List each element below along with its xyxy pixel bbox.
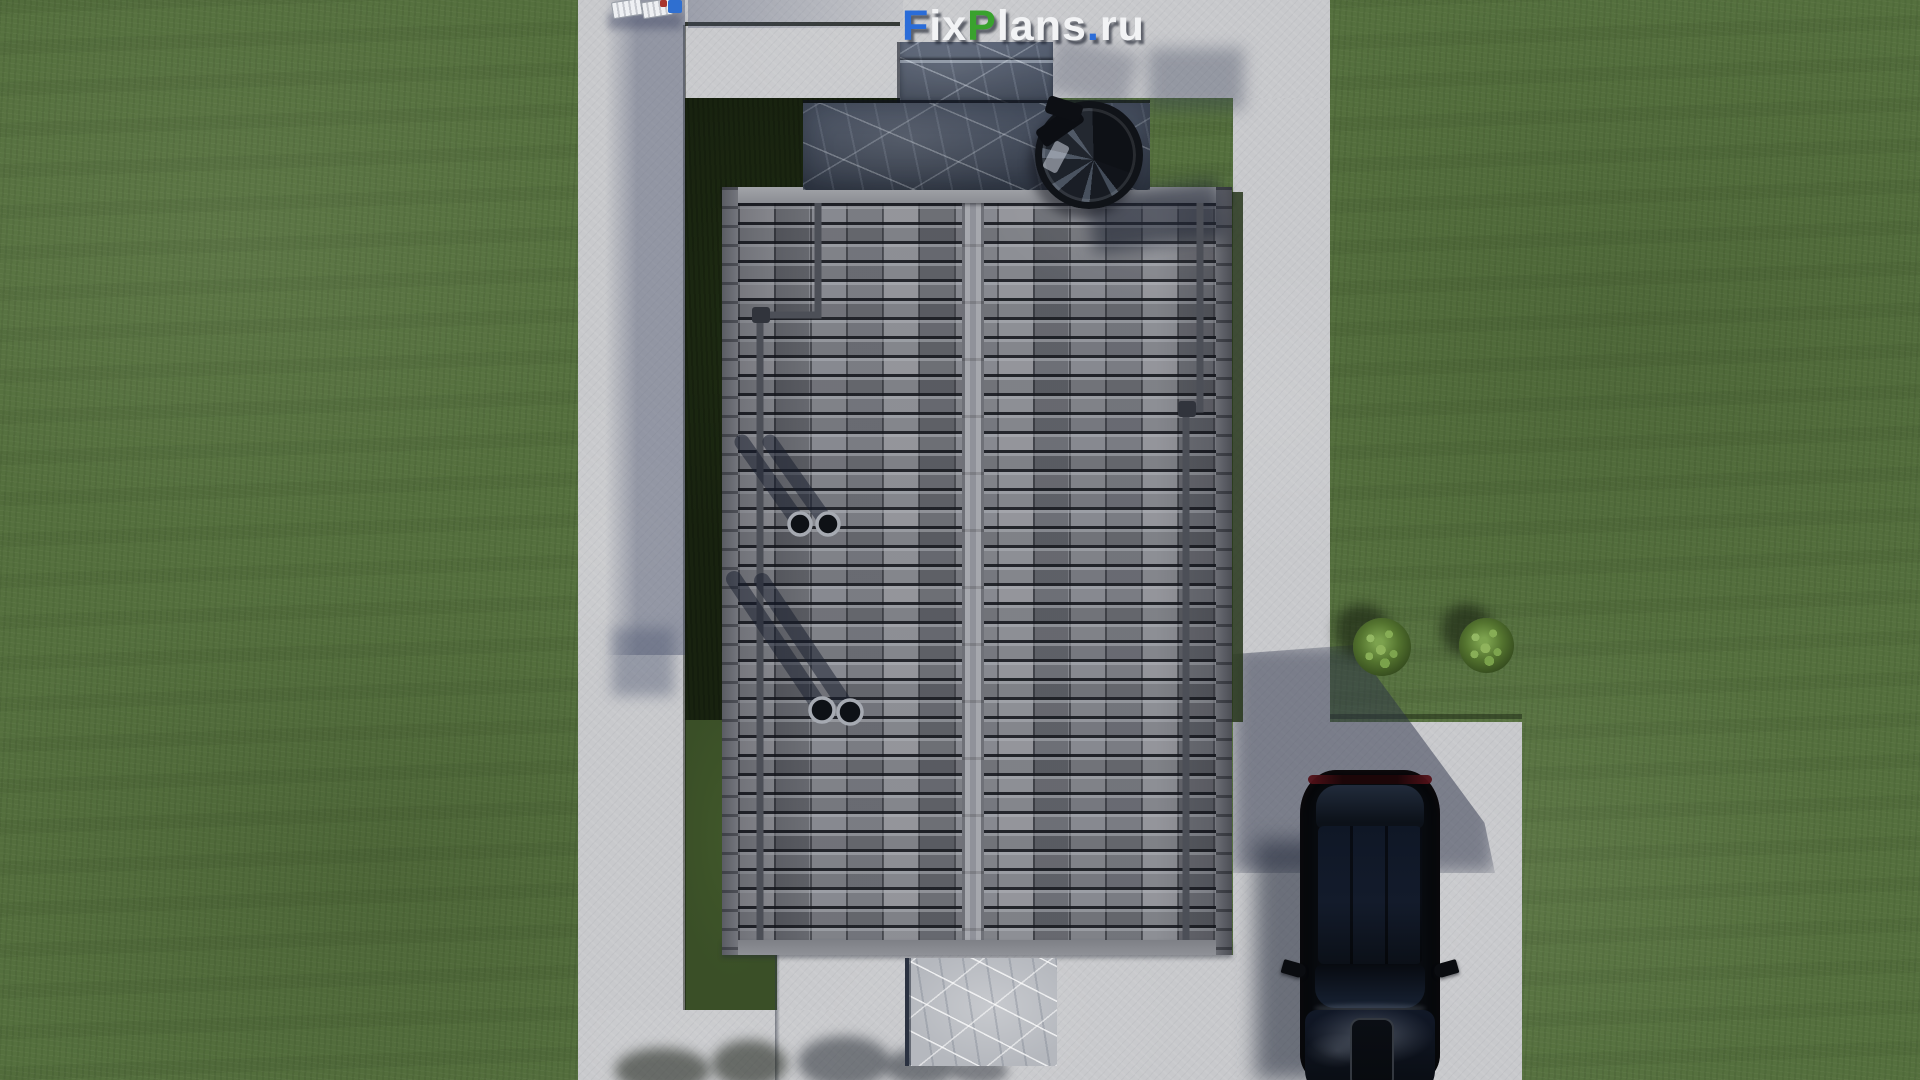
logo-part: ru bbox=[1100, 2, 1145, 50]
driveway-top-edge bbox=[1330, 714, 1522, 719]
stair-landing bbox=[1042, 140, 1070, 174]
logo-part: ix bbox=[929, 2, 967, 50]
car-taillights bbox=[1308, 775, 1432, 784]
car-hood-scoop bbox=[1350, 1018, 1394, 1080]
vent-pipe bbox=[817, 513, 839, 535]
car-rear-window bbox=[1316, 785, 1424, 829]
downpipe-elbow bbox=[752, 307, 770, 323]
vent-pipe bbox=[810, 698, 834, 722]
stone-terrace bbox=[803, 103, 1150, 190]
pool-toy-red bbox=[660, 0, 667, 7]
marble-step bbox=[900, 42, 1053, 105]
car-windshield bbox=[1315, 964, 1425, 1008]
pool-toy-blue bbox=[668, 0, 682, 13]
logo-part: F bbox=[902, 2, 929, 50]
logo-part: . bbox=[1087, 2, 1100, 50]
black-car bbox=[1300, 770, 1440, 1080]
garden-bush bbox=[1353, 618, 1411, 676]
vent-pipe bbox=[789, 513, 811, 535]
aerial-house-render: FixPlans.ru bbox=[0, 0, 1920, 1080]
car-roof bbox=[1318, 826, 1422, 964]
courtyard-wall-edge bbox=[685, 22, 900, 26]
vent-pipe bbox=[838, 700, 862, 724]
roof-fixtures bbox=[722, 187, 1232, 955]
walkway-left bbox=[578, 0, 685, 1080]
courtyard-left-edge bbox=[683, 25, 686, 1010]
walkway-bottom bbox=[578, 1010, 928, 1080]
downpipe-right bbox=[1186, 203, 1200, 940]
logo-part: P bbox=[967, 2, 997, 50]
walkway-right bbox=[1233, 98, 1330, 728]
patio-step-edge bbox=[775, 955, 780, 1080]
tiled-gable-roof bbox=[722, 187, 1232, 955]
logo-part: lans bbox=[997, 2, 1087, 50]
spiral-staircase bbox=[1035, 101, 1143, 209]
step-edge bbox=[900, 60, 1053, 63]
marble-doorstep bbox=[905, 958, 1057, 1066]
watermark-logo: FixPlans.ru bbox=[902, 2, 1145, 51]
garden-bush bbox=[1459, 618, 1514, 673]
downpipe-elbow bbox=[1178, 401, 1196, 417]
